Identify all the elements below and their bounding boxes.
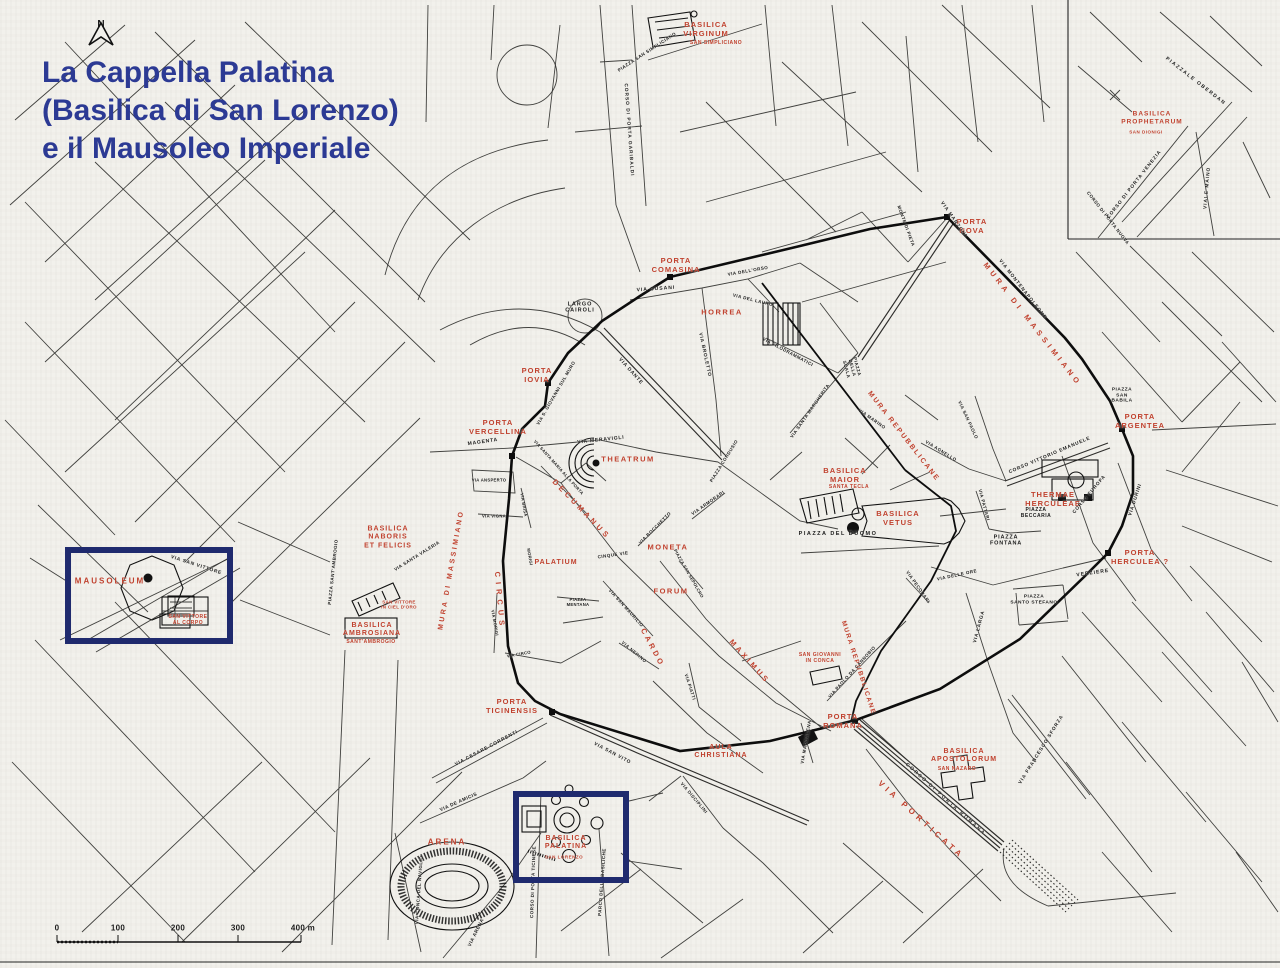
city-gate-markers [509, 214, 1125, 724]
street-label: VIA ANSPERTO [472, 479, 507, 484]
feature-label: PORTA TICINENSIS [486, 698, 538, 716]
feature-label: AULA CHRISTIANA [694, 744, 747, 761]
feature-label: PALATIUM [534, 559, 577, 567]
street-label: PIAZZA FONTANA [990, 535, 1022, 548]
feature-label: PORTA HERCULEA ? [1111, 549, 1169, 567]
feature-label: ARENA [428, 837, 466, 846]
scale-label: 300 [231, 923, 245, 932]
feature-label: BASILICA APOSTOLORUM [931, 748, 997, 765]
map-title-line2: (Basilica di San Lorenzo) [42, 92, 399, 130]
street-label: LARGO CAIROLI [565, 302, 595, 315]
scale-label: 400 m [291, 923, 315, 932]
feature-label: PORTA COMASINA [652, 257, 701, 275]
feature-label: SANTA TECLA [829, 485, 869, 491]
feature-label: HORREA [701, 309, 743, 318]
street-label: PIAZZA MENTANA [567, 598, 590, 608]
milan-historical-map: BASILICA VIRGINUMSAN SIMPLICIANOPORTA CO… [0, 0, 1280, 968]
feature-label: PORTA ROMANA [823, 713, 863, 731]
highlight-box-cappella-palatina [513, 791, 629, 883]
feature-label: BASILICA PROPHETARUM [1121, 110, 1182, 125]
feature-label: SAN GIOVANNI IN CONCA [799, 653, 841, 665]
map-title: La Cappella Palatina (Basilica di San Lo… [42, 54, 399, 168]
north-arrow: N [84, 20, 118, 30]
feature-label: SAN DIONIGI [1129, 129, 1163, 134]
feature-label: SAN VITTORE IN CIEL D'ORO [381, 600, 417, 611]
map-title-line3: e il Mausoleo Imperiale [42, 130, 399, 168]
feature-label: FORUM [654, 588, 689, 597]
street-label: PIAZZA SAN BABILA [1111, 388, 1132, 405]
feature-label: BASILICA AMBROSIANA [343, 622, 401, 639]
scale-label: 100 [111, 923, 125, 932]
feature-label: BASILICA NABORIS ET FELICIS [364, 526, 412, 551]
street-label: VIA VIGNA [482, 515, 506, 520]
feature-label: PORTA VERCELLINA [469, 419, 527, 437]
feature-label: SAN SIMPLICIANO [690, 41, 742, 47]
feature-label: BASILICA VETUS [876, 510, 919, 528]
feature-label: PORTA ARGENTEA [1115, 413, 1165, 431]
scale-label: 200 [171, 923, 185, 932]
street-label: PIAZZA DEL DUOMO [799, 531, 878, 537]
highlight-box-mausoleum [65, 547, 233, 644]
street-label: PIAZZA SANTO STEFANO [1010, 594, 1057, 605]
feature-label: BASILICA VIRGINUM [683, 21, 729, 39]
feature-label: PORTA IOVIA [522, 367, 553, 385]
street-label: PIAZZA BECCARIA [1021, 508, 1051, 520]
feature-label: MONETA [648, 544, 689, 553]
scale-label: 0 [55, 923, 60, 932]
feature-label: THEATRUM [601, 456, 655, 465]
feature-label: SAN NAZARO [938, 767, 976, 773]
feature-label: BASILICA MAIOR [823, 467, 866, 485]
north-arrow-icon [84, 20, 118, 50]
feature-label: SANT'AMBROGIO [346, 640, 395, 646]
map-title-line1: La Cappella Palatina [42, 54, 399, 92]
